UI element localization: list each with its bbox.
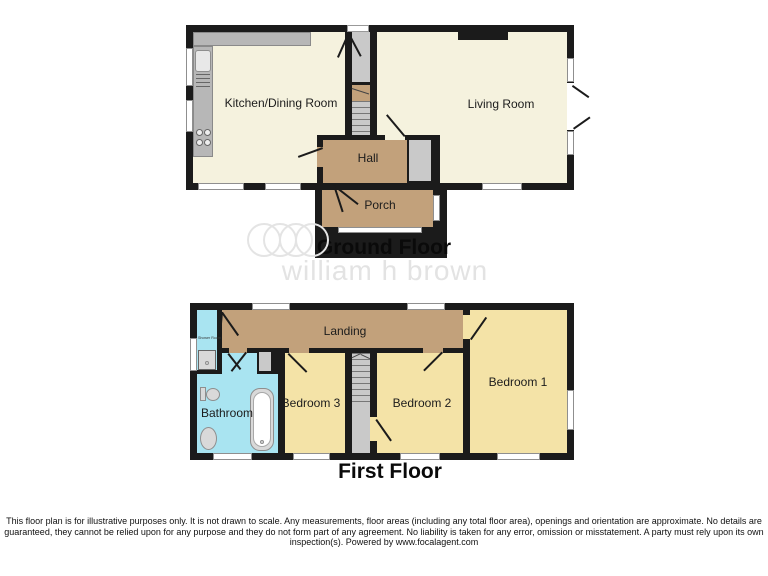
- window: [293, 453, 330, 460]
- window: [338, 227, 422, 233]
- stair-bottom: [352, 407, 370, 453]
- kitchen-counter-top: [193, 32, 311, 46]
- window: [497, 453, 540, 460]
- bedroom1-door-gap: [463, 315, 470, 339]
- shower-drain-icon: [205, 361, 209, 365]
- floorplan-canvas: Kitchen/Dining Room Living Room Hall Por…: [0, 0, 768, 576]
- window: [186, 48, 193, 86]
- room-label-kitchen: Kitchen/Dining Room: [206, 96, 356, 110]
- bathroom-entry-floor: [222, 353, 257, 374]
- french-door-leaf: [573, 117, 591, 130]
- window: [252, 303, 290, 310]
- chimney-breast: [458, 32, 508, 40]
- stair-wall-right: [370, 30, 377, 135]
- shower-tray-icon: [198, 350, 216, 370]
- burner-icon: [204, 129, 211, 136]
- room-label-living: Living Room: [426, 97, 576, 111]
- first-floor-title: First Floor: [240, 460, 540, 484]
- room-label-porch: Porch: [305, 198, 455, 212]
- toilet-icon: [206, 388, 220, 401]
- sink-drainer-icon: [196, 74, 210, 88]
- window: [198, 183, 244, 190]
- disclaimer-text: This floor plan is for illustrative purp…: [2, 516, 766, 548]
- stair-wall-left: [345, 30, 352, 135]
- window: [186, 100, 193, 132]
- bedroom3-door-gap: [289, 348, 309, 353]
- burner-icon: [196, 139, 203, 146]
- room-label-bedroom2: Bedroom 2: [347, 396, 497, 410]
- stair-top-landing: [352, 32, 370, 82]
- window: [567, 390, 574, 430]
- airing-cupboard: [257, 350, 273, 373]
- window: [265, 183, 301, 190]
- bathtub-drain-icon: [260, 440, 264, 444]
- room-label-shower: Shower Room: [198, 336, 221, 340]
- room-label-hall: Hall: [293, 151, 443, 165]
- room-label-landing: Landing: [270, 324, 420, 338]
- window: [482, 183, 522, 190]
- window: [407, 303, 445, 310]
- window: [567, 58, 574, 82]
- basin-icon: [200, 427, 217, 450]
- window: [400, 453, 440, 460]
- watermark-brand: william h brown: [185, 255, 585, 287]
- watermark-rings-icon: [295, 223, 329, 257]
- window: [213, 453, 252, 460]
- window: [190, 338, 197, 371]
- rear-door-gap: [347, 25, 369, 32]
- ground-floor-plan: [186, 25, 574, 258]
- burner-icon: [204, 139, 211, 146]
- hob-icon: [194, 127, 213, 149]
- window: [567, 131, 574, 155]
- room-label-bedroom1: Bedroom 1: [443, 375, 593, 389]
- burner-icon: [196, 129, 203, 136]
- sink-icon: [195, 50, 211, 72]
